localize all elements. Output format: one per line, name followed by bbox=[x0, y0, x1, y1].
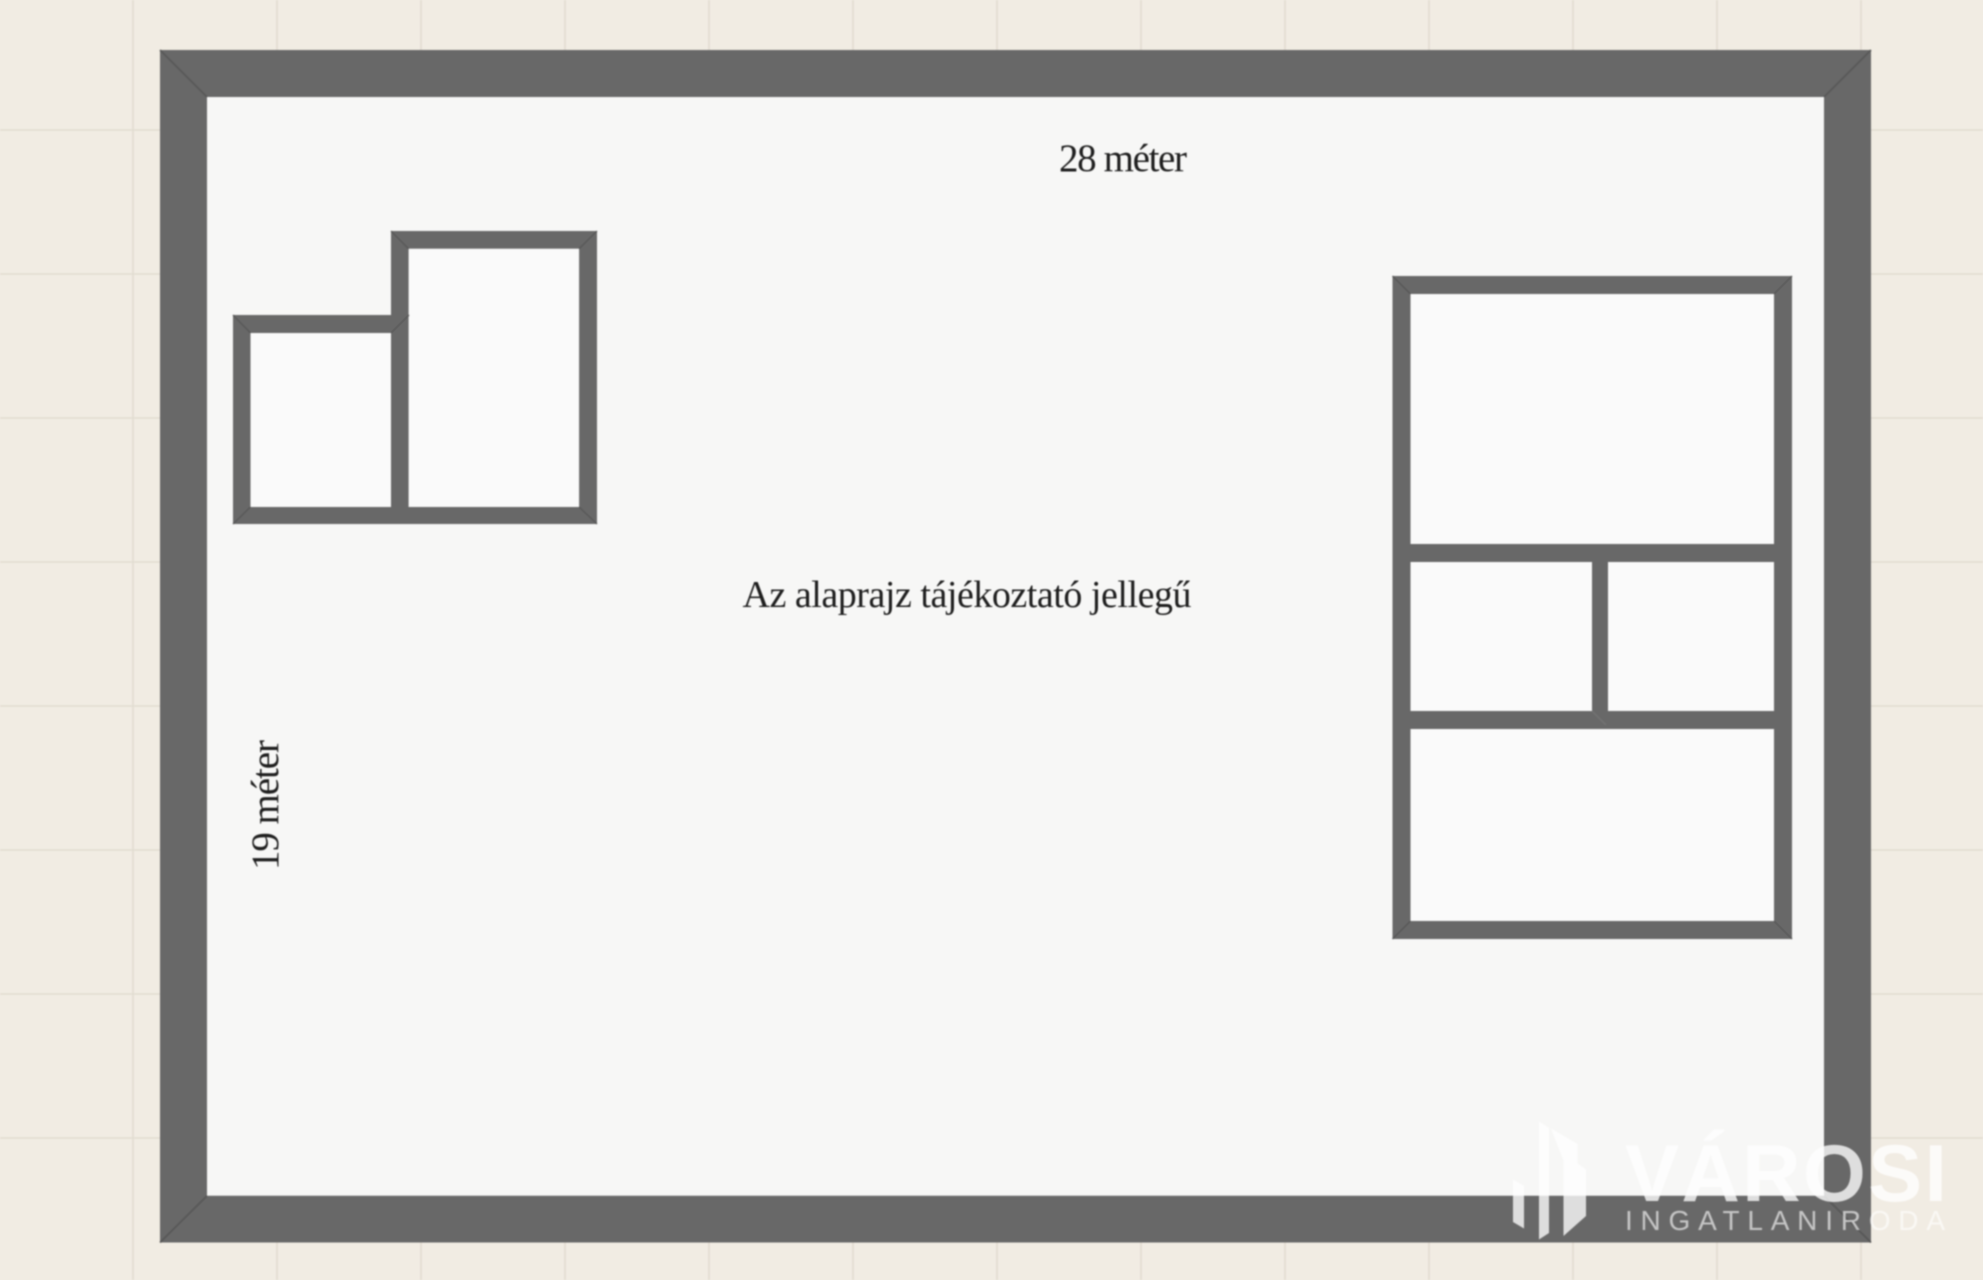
svg-text:Az alaprajz tájékoztató jelleg: Az alaprajz tájékoztató jellegű bbox=[743, 574, 1192, 616]
svg-text:19 méter: 19 méter bbox=[244, 740, 287, 870]
svg-text:28 méter: 28 méter bbox=[1059, 137, 1187, 180]
